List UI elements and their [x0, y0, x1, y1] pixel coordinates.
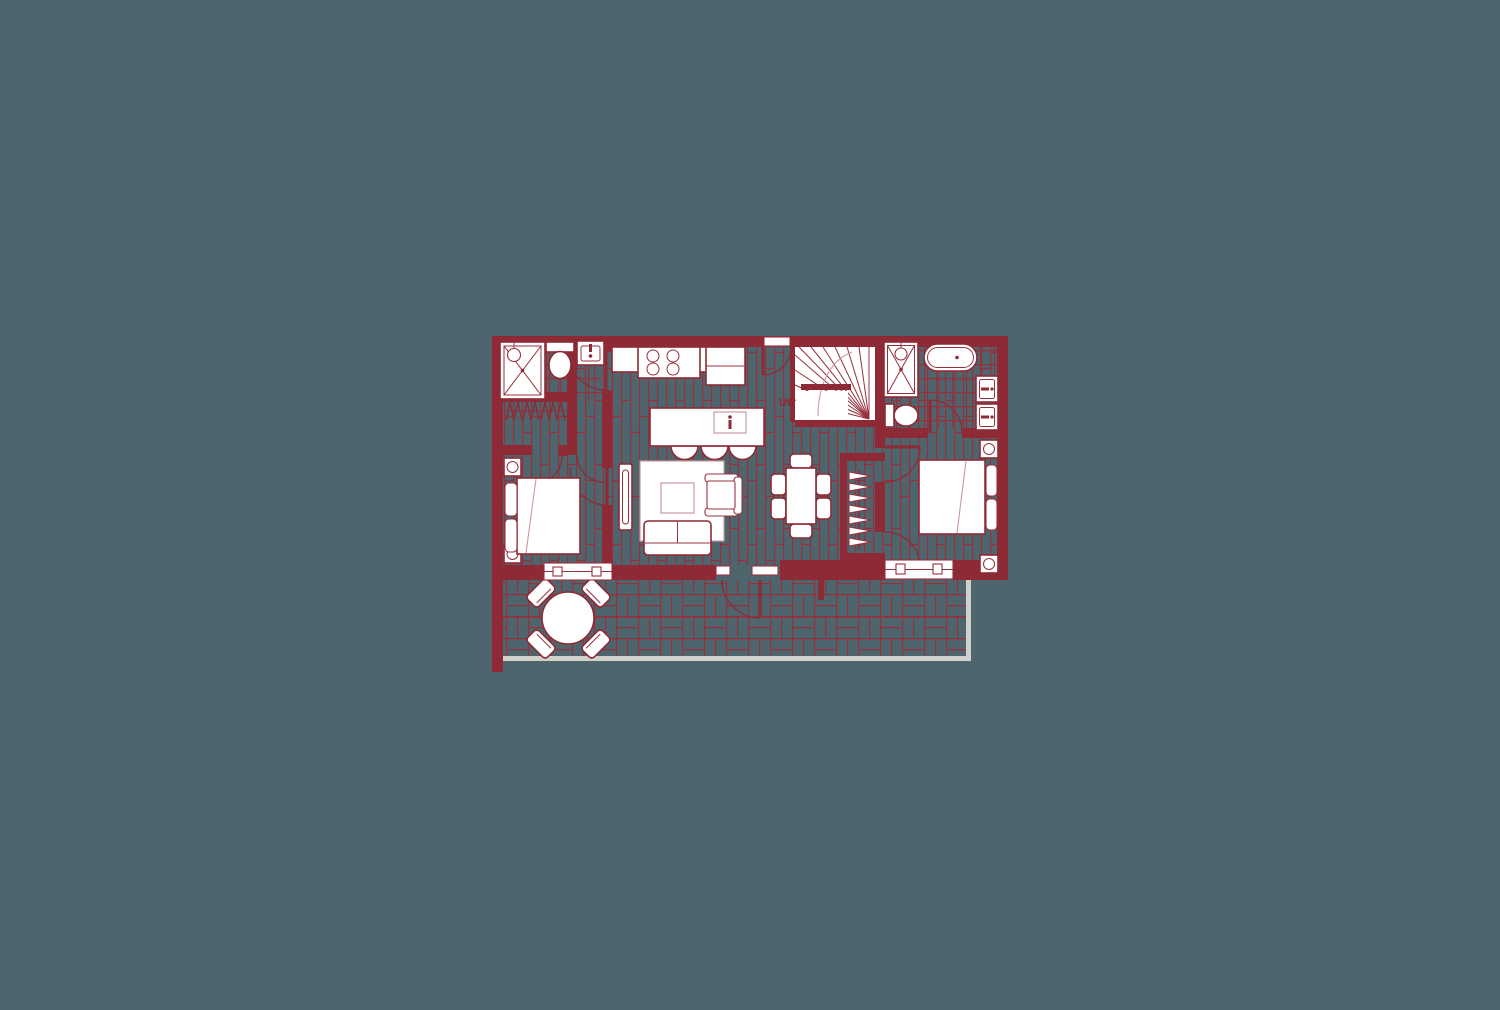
dining-chair [816, 498, 831, 519]
wall-stairs-left [790, 347, 795, 422]
dining-chair [771, 498, 786, 519]
nightstand-lamp-icon [980, 440, 998, 458]
balcony-wall-stub [818, 580, 824, 600]
dining-chair [790, 454, 812, 468]
wall-closet2-bottom [840, 553, 885, 580]
nightstand-lamp-icon [504, 458, 521, 476]
balcony-threshold [716, 566, 730, 575]
sliding-window-icon [885, 560, 953, 579]
sliding-window-icon [544, 563, 612, 580]
bed-icon [505, 478, 580, 554]
nightstand-lamp-icon [980, 555, 998, 573]
tv-console [619, 464, 632, 530]
balcony-threshold [752, 566, 778, 575]
door-center-post [558, 445, 567, 456]
floor-plan-canvas: UP [0, 0, 1500, 1010]
balcony-railing-bottom [503, 656, 971, 661]
wall-bedroom1-top [503, 445, 532, 455]
dining-chair [816, 474, 831, 495]
sofa-icon [644, 521, 711, 555]
shower-icon [500, 342, 545, 399]
balcony-round-table [542, 592, 594, 644]
wall-bath1-right [602, 390, 612, 402]
wall-bedroom1-right-b [602, 505, 612, 565]
ensuite-toilet-icon [885, 404, 918, 427]
wall-bedroom2-left-mid [875, 482, 885, 532]
wall-bottom-seg [503, 565, 544, 580]
wall-closet2-left [840, 461, 847, 553]
stairs-up-label: UP [779, 397, 795, 409]
pillow [986, 465, 997, 496]
wall-closet2-top [840, 453, 885, 461]
pillow [505, 519, 517, 552]
ensuite-shower-icon [884, 342, 918, 397]
wall-stairs-bottom [795, 420, 880, 427]
wall-hall-kitchen [602, 402, 612, 445]
dining-chair [790, 524, 812, 538]
balcony [503, 577, 971, 661]
dining-table [786, 468, 816, 524]
armchair-icon [705, 474, 742, 516]
wall-bottom-seg [612, 565, 716, 580]
dining-chair [771, 474, 786, 495]
kitchen-tall-cabinet [706, 347, 745, 385]
cooktop-icon [638, 347, 700, 378]
pillow [986, 499, 997, 530]
wall-bedroom1-right-a [602, 445, 612, 468]
wall-sink-icon [577, 341, 604, 365]
freestanding-tub-icon [924, 344, 977, 371]
entry-threshold [764, 337, 790, 346]
stair-landing [796, 391, 848, 419]
stair-handrail [801, 384, 851, 390]
pillow [505, 483, 517, 516]
bed-icon [919, 460, 997, 534]
balcony-railing-right [966, 580, 971, 658]
coffee-table [661, 483, 694, 513]
page-background: UP [0, 0, 1500, 1010]
